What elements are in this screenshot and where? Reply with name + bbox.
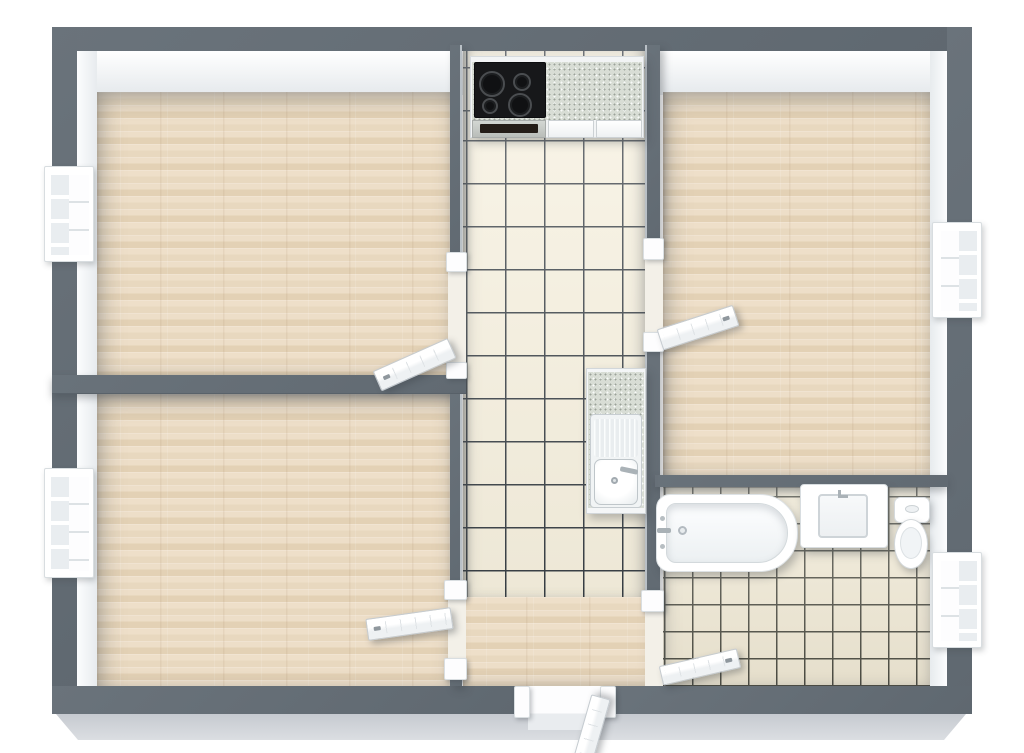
door-jamb: [446, 362, 467, 379]
wall-inner-face-left: [77, 51, 97, 686]
oven-handle-slot: [480, 124, 538, 133]
outer-wall-left: [52, 27, 77, 714]
outer-wall-bottom-left: [52, 686, 528, 714]
interior-wall-kitchen-left-upper: [450, 45, 462, 257]
window-right-bathroom: [932, 552, 982, 648]
burner-icon: [479, 71, 505, 97]
bathtub-drain-icon: [678, 526, 687, 535]
room-floor-bottom-left: [97, 394, 450, 686]
door-jamb: [444, 658, 467, 680]
kitchen-drawer: [548, 120, 594, 138]
kitchen-drawer: [596, 120, 642, 138]
toilet-flush-button-icon: [905, 505, 919, 513]
entry-door-jamb: [514, 686, 530, 718]
doorway-threshold-bottom-left-room: [448, 598, 466, 662]
burner-icon: [508, 93, 532, 117]
interior-wall-hall-bottom-left-room: [450, 394, 462, 598]
floor-plan-3d: [0, 0, 1024, 753]
foundation-base: [56, 714, 966, 740]
room-floor-right: [663, 92, 930, 475]
bathtub-knob-icon: [660, 516, 665, 521]
door-jamb: [641, 590, 664, 612]
washbasin-bowl: [818, 494, 868, 538]
bathtub-knob-icon: [660, 544, 665, 549]
doorway-threshold-right-room: [645, 258, 663, 336]
sink-drain-icon: [611, 477, 618, 484]
outer-wall-bottom-right: [602, 686, 972, 714]
washbasin-faucet-icon: [838, 490, 848, 498]
sink-drainboard: [594, 419, 638, 457]
window-sill: [941, 561, 959, 641]
hallway-floor: [463, 597, 645, 686]
door-jamb: [446, 252, 467, 272]
window-sill: [69, 175, 89, 255]
window-glass: [959, 231, 977, 311]
burner-icon: [513, 73, 531, 91]
door-jamb: [444, 580, 467, 600]
bathtub-faucet-icon: [657, 528, 671, 533]
window-left-bottom: [44, 468, 94, 578]
window-sill: [69, 477, 89, 571]
burner-icon: [482, 98, 498, 114]
window-glass: [51, 175, 69, 255]
interior-wall-kitchen-bathroom-left: [645, 336, 660, 610]
room-floor-top-left: [97, 92, 450, 375]
window-sill: [941, 231, 959, 311]
window-glass: [51, 477, 69, 571]
interior-wall-kitchen-right-upper: [645, 45, 660, 240]
window-glass: [959, 561, 977, 641]
window-right-top: [932, 222, 982, 318]
window-left-top: [44, 166, 94, 262]
outer-wall-top: [52, 27, 972, 51]
toilet-bowl-inner: [900, 527, 922, 559]
door-jamb: [643, 238, 664, 260]
